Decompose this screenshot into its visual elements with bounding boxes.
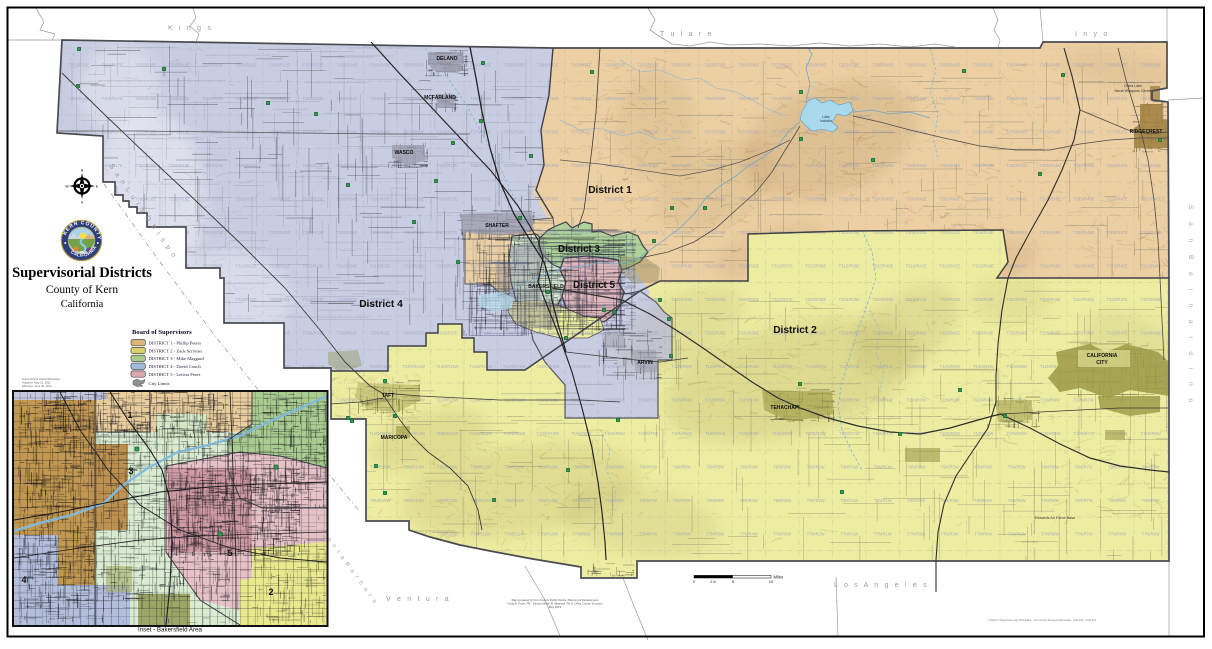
svg-text:T31S/R23E: T31S/R23E bbox=[303, 264, 324, 269]
svg-text:T31S/R37E: T31S/R37E bbox=[772, 264, 793, 269]
svg-text:T26S/R29E: T26S/R29E bbox=[504, 96, 525, 101]
svg-text:T26S/R18E: T26S/R18E bbox=[135, 96, 156, 101]
svg-text:District 5: District 5 bbox=[573, 280, 615, 291]
svg-text:T31S/R34E: T31S/R34E bbox=[671, 264, 692, 269]
svg-text:T10N/R4W: T10N/R4W bbox=[739, 431, 759, 436]
svg-text:T7N/R2W: T7N/R2W bbox=[907, 532, 925, 537]
svg-text:T27S/R45E: T27S/R45E bbox=[1040, 130, 1061, 135]
svg-text:T27S/R32E: T27S/R32E bbox=[604, 130, 625, 135]
svg-text:T32S/R47E: T32S/R47E bbox=[1107, 297, 1128, 302]
svg-text:DISTRICT 5 - Leticia Perez: DISTRICT 5 - Leticia Perez bbox=[149, 372, 201, 377]
svg-text:T10N/R1W: T10N/R1W bbox=[839, 431, 859, 436]
svg-text:T30S/R23E: T30S/R23E bbox=[303, 230, 324, 235]
svg-text:T7N/R7W: T7N/R7W bbox=[1075, 532, 1093, 537]
svg-text:T32S/R38E: T32S/R38E bbox=[805, 297, 826, 302]
svg-text:T10N/R11W: T10N/R11W bbox=[503, 431, 525, 436]
svg-text:T25S/R45E: T25S/R45E bbox=[1040, 63, 1061, 68]
svg-text:T27S/R40E: T27S/R40E bbox=[872, 130, 893, 135]
svg-text:T25S/R24E: T25S/R24E bbox=[336, 63, 357, 68]
svg-text:T32S/R26E: T32S/R26E bbox=[403, 297, 424, 302]
svg-text:T29S/R37E: T29S/R37E bbox=[772, 197, 793, 202]
svg-text:TAFT: TAFT bbox=[382, 393, 394, 399]
svg-text:T7N/R5W: T7N/R5W bbox=[1008, 532, 1026, 537]
svg-text:T32S/R34E: T32S/R34E bbox=[671, 297, 692, 302]
svg-text:T11N/R5W: T11N/R5W bbox=[705, 398, 725, 403]
svg-text:T31S/R39E: T31S/R39E bbox=[839, 264, 860, 269]
svg-text:T8N/R2W: T8N/R2W bbox=[807, 498, 825, 503]
svg-text:DISTRICT 3 - Mike Maggard: DISTRICT 3 - Mike Maggard bbox=[149, 356, 205, 361]
svg-text:T7N/R8W: T7N/R8W bbox=[606, 532, 624, 537]
svg-text:T29S/R38E: T29S/R38E bbox=[805, 197, 826, 202]
svg-text:T31S/R43E: T31S/R43E bbox=[973, 264, 994, 269]
svg-text:T7N/R10W: T7N/R10W bbox=[538, 532, 558, 537]
svg-text:T10N/R13W: T10N/R13W bbox=[436, 431, 459, 436]
svg-text:T25S/R35E: T25S/R35E bbox=[705, 63, 726, 68]
svg-text:BAKERSFIELD: BAKERSFIELD bbox=[528, 284, 564, 290]
svg-text:T8N/R6W: T8N/R6W bbox=[673, 498, 691, 503]
svg-text:T32S/R41E: T32S/R41E bbox=[906, 297, 927, 302]
svg-text:T27S/R35E: T27S/R35E bbox=[705, 130, 726, 135]
svg-text:T29S/R41E: T29S/R41E bbox=[906, 197, 927, 202]
svg-text:WASCO: WASCO bbox=[395, 150, 414, 156]
svg-text:T33S/R42E: T33S/R42E bbox=[939, 331, 960, 336]
svg-text:T31S/R38E: T31S/R38E bbox=[805, 264, 826, 269]
svg-text:T9N/R7W: T9N/R7W bbox=[1075, 465, 1093, 470]
svg-text:T26S/R37E: T26S/R37E bbox=[772, 96, 793, 101]
svg-text:T12N/R4W: T12N/R4W bbox=[739, 364, 759, 369]
svg-text:T12N/R12W: T12N/R12W bbox=[469, 364, 492, 369]
svg-text:T27S/R47E: T27S/R47E bbox=[1107, 130, 1128, 135]
svg-text:T32S/R40E: T32S/R40E bbox=[872, 297, 893, 302]
svg-text:T26S/R40E: T26S/R40E bbox=[872, 96, 893, 101]
svg-text:T26S/R20E: T26S/R20E bbox=[202, 96, 223, 101]
svg-text:T25S/R39E: T25S/R39E bbox=[839, 63, 860, 68]
svg-text:T25S/R46E: T25S/R46E bbox=[1073, 63, 1094, 68]
svg-text:T8N/R3W: T8N/R3W bbox=[941, 498, 959, 503]
svg-text:T32S/R36E: T32S/R36E bbox=[738, 297, 759, 302]
svg-text:T8N/R11W: T8N/R11W bbox=[504, 498, 524, 503]
svg-text:V e n t u r a: V e n t u r a bbox=[386, 596, 451, 603]
svg-text:T31S/R26E: T31S/R26E bbox=[403, 264, 424, 269]
svg-text:T8N/R5W: T8N/R5W bbox=[706, 498, 724, 503]
svg-text:T7N/R4W: T7N/R4W bbox=[974, 532, 992, 537]
svg-text:T29S/R28E: T29S/R28E bbox=[470, 197, 491, 202]
svg-text:T32S/R31E: T32S/R31E bbox=[571, 297, 592, 302]
svg-text:T26S/R41E: T26S/R41E bbox=[906, 96, 927, 101]
svg-text:T25S/R26E: T25S/R26E bbox=[403, 63, 424, 68]
svg-text:T25S/R19E: T25S/R19E bbox=[169, 63, 190, 68]
svg-text:T9N/R6W: T9N/R6W bbox=[1041, 465, 1059, 470]
svg-text:T32S/R43E: T32S/R43E bbox=[973, 297, 994, 302]
svg-text:T28S/R42E: T28S/R42E bbox=[939, 163, 960, 168]
svg-text:Edwards Air Force Base: Edwards Air Force Base bbox=[1035, 516, 1076, 520]
svg-text:T9N/R14W: T9N/R14W bbox=[404, 465, 424, 470]
svg-text:T29S/R39E: T29S/R39E bbox=[839, 197, 860, 202]
svg-text:T32S/R35E: T32S/R35E bbox=[705, 297, 726, 302]
svg-text:Supervisorial Districts: Supervisorial Districts bbox=[12, 265, 152, 281]
svg-text:T28S/R27E: T28S/R27E bbox=[437, 163, 458, 168]
svg-text:T9N/R2W: T9N/R2W bbox=[907, 465, 925, 470]
svg-text:T11N/R16W: T11N/R16W bbox=[336, 398, 358, 403]
svg-text:T10N/R12W: T10N/R12W bbox=[469, 431, 492, 436]
svg-text:T27S/R17E: T27S/R17E bbox=[102, 130, 123, 135]
svg-text:District 1: District 1 bbox=[588, 185, 632, 196]
svg-text:T28S/R46E: T28S/R46E bbox=[1073, 163, 1094, 168]
svg-text:T31S/R24E: T31S/R24E bbox=[336, 264, 357, 269]
svg-text:District 2: District 2 bbox=[773, 325, 817, 336]
svg-text:S a n B e r n a r d i n o: S a n B e r n a r d i n o bbox=[1187, 205, 1194, 408]
svg-text:T12N/R1W: T12N/R1W bbox=[839, 364, 859, 369]
svg-text:T8N/R13W: T8N/R13W bbox=[437, 498, 457, 503]
svg-text:T26S/R19E: T26S/R19E bbox=[169, 96, 190, 101]
svg-text:T29S/R32E: T29S/R32E bbox=[604, 197, 625, 202]
svg-text:T29S/R20E: T29S/R20E bbox=[202, 197, 223, 202]
svg-text:T25S/R47E: T25S/R47E bbox=[1107, 63, 1128, 68]
svg-text:T12N/R2W: T12N/R2W bbox=[906, 364, 926, 369]
svg-text:T8N/R8W: T8N/R8W bbox=[1108, 498, 1126, 503]
svg-text:T30S/R48E: T30S/R48E bbox=[1140, 230, 1161, 235]
svg-text:T29S/R25E: T29S/R25E bbox=[370, 197, 391, 202]
svg-text:T26S/R21E: T26S/R21E bbox=[236, 96, 257, 101]
svg-text:T33S/R43E: T33S/R43E bbox=[973, 331, 994, 336]
svg-text:T11N/R4W: T11N/R4W bbox=[973, 398, 993, 403]
svg-text:T10N/R2W: T10N/R2W bbox=[806, 431, 826, 436]
svg-text:T32S/R23E: T32S/R23E bbox=[303, 297, 324, 302]
svg-text:T26S/R44E: T26S/R44E bbox=[1006, 96, 1027, 101]
svg-text:T25S/R29E: T25S/R29E bbox=[504, 63, 525, 68]
svg-text:L o s A n g e l e s: L o s A n g e l e s bbox=[834, 582, 929, 589]
svg-text:T29S/R33E: T29S/R33E bbox=[638, 197, 659, 202]
svg-text:T28S/R30E: T28S/R30E bbox=[537, 163, 558, 168]
svg-text:T33S/R48E: T33S/R48E bbox=[1140, 331, 1161, 336]
svg-text:T25S/R25E: T25S/R25E bbox=[370, 63, 391, 68]
svg-text:T28S/R41E: T28S/R41E bbox=[906, 163, 927, 168]
svg-text:T12N/R10W: T12N/R10W bbox=[536, 364, 559, 369]
svg-text:T30S/R44E: T30S/R44E bbox=[1006, 230, 1027, 235]
svg-text:T30S/R25E: T30S/R25E bbox=[370, 230, 391, 235]
svg-text:T7N/R2W: T7N/R2W bbox=[807, 532, 825, 537]
svg-text:CALIFORNIA: CALIFORNIA bbox=[1087, 353, 1118, 359]
svg-text:T26S/R39E: T26S/R39E bbox=[839, 96, 860, 101]
svg-text:T8N/R6W: T8N/R6W bbox=[1041, 498, 1059, 503]
svg-text:T33S/R47E: T33S/R47E bbox=[1107, 331, 1128, 336]
svg-text:T25S/R43E: T25S/R43E bbox=[973, 63, 994, 68]
svg-text:T10N/R10W: T10N/R10W bbox=[536, 431, 559, 436]
svg-text:T26S/R34E: T26S/R34E bbox=[671, 96, 692, 101]
svg-text:T29S/R36E: T29S/R36E bbox=[738, 197, 759, 202]
svg-text:California: California bbox=[61, 299, 104, 310]
svg-text:T26S/R33E: T26S/R33E bbox=[638, 96, 659, 101]
svg-text:T10N/R5W: T10N/R5W bbox=[1007, 431, 1027, 436]
svg-text:T26S/R35E: T26S/R35E bbox=[705, 96, 726, 101]
svg-text:T11N/R1W: T11N/R1W bbox=[873, 398, 893, 403]
svg-text:T28S/R45E: T28S/R45E bbox=[1040, 163, 1061, 168]
svg-text:T9N/R15W: T9N/R15W bbox=[370, 465, 390, 470]
svg-text:T33S/R34E: T33S/R34E bbox=[671, 331, 692, 336]
svg-text:T27S/R36E: T27S/R36E bbox=[738, 130, 759, 135]
svg-text:T29S/R19E: T29S/R19E bbox=[169, 197, 190, 202]
svg-text:T33S/R45E: T33S/R45E bbox=[1040, 331, 1061, 336]
svg-text:I n y o: I n y o bbox=[1075, 31, 1109, 38]
svg-text:T11N/R3W: T11N/R3W bbox=[940, 398, 960, 403]
svg-text:T9N/R4W: T9N/R4W bbox=[740, 465, 758, 470]
svg-text:T28S/R40E: T28S/R40E bbox=[872, 163, 893, 168]
svg-text:T27S/R18E: T27S/R18E bbox=[135, 130, 156, 135]
svg-text:T26S/R28E: T26S/R28E bbox=[470, 96, 491, 101]
svg-text:T32S/R44E: T32S/R44E bbox=[1006, 297, 1027, 302]
svg-text:T26S/R42E: T26S/R42E bbox=[939, 96, 960, 101]
svg-text:County of Kern: County of Kern bbox=[46, 284, 118, 296]
svg-text:T32S/R42E: T32S/R42E bbox=[939, 297, 960, 302]
svg-text:T7N/R5W: T7N/R5W bbox=[706, 532, 724, 537]
svg-text:T9N/R7W: T9N/R7W bbox=[639, 465, 657, 470]
svg-text:T8N/R15W: T8N/R15W bbox=[370, 498, 390, 503]
svg-text:T28S/R34E: T28S/R34E bbox=[671, 163, 692, 168]
svg-text:T25S/R34E: T25S/R34E bbox=[671, 63, 692, 68]
svg-text:CITY: CITY bbox=[1096, 360, 1108, 366]
svg-text:T7N/R11W: T7N/R11W bbox=[504, 532, 524, 537]
svg-text:T7N/R6W: T7N/R6W bbox=[1041, 532, 1059, 537]
svg-text:T29S/R47E: T29S/R47E bbox=[1107, 197, 1128, 202]
svg-text:T31S/R45E: T31S/R45E bbox=[1040, 264, 1061, 269]
svg-text:T12N/R5W: T12N/R5W bbox=[1007, 364, 1027, 369]
svg-text:DELANO: DELANO bbox=[436, 56, 457, 62]
svg-text:T31S/R40E: T31S/R40E bbox=[872, 264, 893, 269]
svg-text:T u l a r e: T u l a r e bbox=[660, 31, 714, 38]
svg-text:DISTRICT 1 - Phillip Peters: DISTRICT 1 - Phillip Peters bbox=[149, 341, 202, 346]
svg-text:T29S/R48E: T29S/R48E bbox=[1140, 197, 1161, 202]
svg-text:T25S/R30E: T25S/R30E bbox=[537, 63, 558, 68]
svg-text:T28S/R22E: T28S/R22E bbox=[269, 163, 290, 168]
svg-text:T8N/R8W: T8N/R8W bbox=[606, 498, 624, 503]
svg-text:T33S/R24E: T33S/R24E bbox=[336, 331, 357, 336]
svg-text:T27S/R41E: T27S/R41E bbox=[906, 130, 927, 135]
svg-text:DISTRICT 2 - Zack Scrivner: DISTRICT 2 - Zack Scrivner bbox=[149, 348, 203, 353]
svg-text:T9N/R6W: T9N/R6W bbox=[673, 465, 691, 470]
svg-text:T8N/R10W: T8N/R10W bbox=[538, 498, 558, 503]
svg-text:T30S/R35E: T30S/R35E bbox=[705, 230, 726, 235]
svg-text:T8N/R14W: T8N/R14W bbox=[404, 498, 424, 503]
svg-text:T28S/R19E: T28S/R19E bbox=[169, 163, 190, 168]
svg-text:T8N/R1W: T8N/R1W bbox=[874, 498, 892, 503]
svg-text:MARICOPA: MARICOPA bbox=[381, 435, 408, 441]
svg-text:T11N/R4W: T11N/R4W bbox=[739, 398, 759, 403]
svg-text:T29S/R46E: T29S/R46E bbox=[1073, 197, 1094, 202]
svg-text:T27S/R43E: T27S/R43E bbox=[973, 130, 994, 135]
svg-text:T29S/R44E: T29S/R44E bbox=[1006, 197, 1027, 202]
svg-text:T33S/R25E: T33S/R25E bbox=[370, 331, 391, 336]
svg-text:T9N/R5W: T9N/R5W bbox=[706, 465, 724, 470]
svg-text:T9N/R1W: T9N/R1W bbox=[874, 465, 892, 470]
svg-text:T29S/R31E: T29S/R31E bbox=[571, 197, 592, 202]
svg-text:Effective: June 30, 2011: Effective: June 30, 2011 bbox=[22, 384, 52, 388]
svg-text:T10N/R7W: T10N/R7W bbox=[1074, 431, 1094, 436]
svg-text:T33S/R36E: T33S/R36E bbox=[738, 331, 759, 336]
svg-text:T9N/R8W: T9N/R8W bbox=[606, 465, 624, 470]
svg-text:T33S/R41E: T33S/R41E bbox=[906, 331, 927, 336]
svg-text:T10N/R6W: T10N/R6W bbox=[672, 431, 692, 436]
svg-text:T25S/R16E: T25S/R16E bbox=[68, 63, 89, 68]
svg-text:T31S/R22E: T31S/R22E bbox=[269, 264, 290, 269]
svg-text:T12N/R9W: T12N/R9W bbox=[571, 364, 591, 369]
svg-text:T33S/R35E: T33S/R35E bbox=[705, 331, 726, 336]
svg-text:T32S/R37E: T32S/R37E bbox=[772, 297, 793, 302]
svg-text:T31S/R48E: T31S/R48E bbox=[1140, 264, 1161, 269]
svg-text:T9N/R12W: T9N/R12W bbox=[471, 465, 491, 470]
svg-text:T28S/R47E: T28S/R47E bbox=[1107, 163, 1128, 168]
svg-text:T9N/R9W: T9N/R9W bbox=[572, 465, 590, 470]
svg-text:T12N/R13W: T12N/R13W bbox=[436, 364, 459, 369]
svg-text:T29S/R40E: T29S/R40E bbox=[872, 197, 893, 202]
svg-text:T12N/R3W: T12N/R3W bbox=[940, 364, 960, 369]
svg-text:T26S/R32E: T26S/R32E bbox=[604, 96, 625, 101]
svg-text:T11N/R6W: T11N/R6W bbox=[1040, 398, 1060, 403]
svg-text:T9N/R4W: T9N/R4W bbox=[974, 465, 992, 470]
svg-text:T32S/R48E: T32S/R48E bbox=[1140, 297, 1161, 302]
svg-text:T28S/R38E: T28S/R38E bbox=[805, 163, 826, 168]
svg-text:T7N/R12W: T7N/R12W bbox=[471, 532, 491, 537]
svg-text:T8N/R3W: T8N/R3W bbox=[773, 498, 791, 503]
svg-text:ARVIN: ARVIN bbox=[637, 360, 653, 366]
svg-text:T28S/R33E: T28S/R33E bbox=[638, 163, 659, 168]
svg-text:T25S/R18E: T25S/R18E bbox=[135, 63, 156, 68]
svg-text:T11N/R2W: T11N/R2W bbox=[906, 398, 926, 403]
svg-text:T7N/R9W: T7N/R9W bbox=[572, 532, 590, 537]
svg-text:T31S/R41E: T31S/R41E bbox=[906, 264, 927, 269]
svg-text:T30S/R21E: T30S/R21E bbox=[236, 230, 257, 235]
svg-text:T8N/R1W: T8N/R1W bbox=[840, 498, 858, 503]
svg-text:T32S/R45E: T32S/R45E bbox=[1040, 297, 1061, 302]
svg-text:T9N/R3W: T9N/R3W bbox=[941, 465, 959, 470]
svg-text:T31S/R42E: T31S/R42E bbox=[939, 264, 960, 269]
svg-text:T25S/R17E: T25S/R17E bbox=[102, 63, 123, 68]
svg-text:T11N/R6W: T11N/R6W bbox=[672, 398, 692, 403]
svg-text:T12N/R3W: T12N/R3W bbox=[772, 364, 792, 369]
svg-text:T26S/R31E: T26S/R31E bbox=[571, 96, 592, 101]
svg-text:T7N/R8W: T7N/R8W bbox=[1108, 532, 1126, 537]
svg-text:T12N/R8W: T12N/R8W bbox=[605, 364, 625, 369]
svg-text:T31S/R44E: T31S/R44E bbox=[1006, 264, 1027, 269]
svg-text:T8N/R4W: T8N/R4W bbox=[974, 498, 992, 503]
svg-text:T12N/R11W: T12N/R11W bbox=[503, 364, 525, 369]
svg-text:T25S/R48E: T25S/R48E bbox=[1140, 63, 1161, 68]
svg-text:T30S/R33E: T30S/R33E bbox=[638, 230, 659, 235]
svg-text:T27S/R44E: T27S/R44E bbox=[1006, 130, 1027, 135]
svg-text:T27S/R39E: T27S/R39E bbox=[839, 130, 860, 135]
svg-text:T30S/R47E: T30S/R47E bbox=[1107, 230, 1128, 235]
svg-text:T9N/R1W: T9N/R1W bbox=[840, 465, 858, 470]
svg-text:K i n g s: K i n g s bbox=[168, 25, 213, 32]
svg-text:T31S/R25E: T31S/R25E bbox=[370, 264, 391, 269]
svg-text:T31S/R30E: T31S/R30E bbox=[537, 264, 558, 269]
svg-text:T30S/R45E: T30S/R45E bbox=[1040, 230, 1061, 235]
svg-text:RIDGECREST: RIDGECREST bbox=[1130, 129, 1163, 135]
svg-text:T25S/R22E: T25S/R22E bbox=[269, 63, 290, 68]
svg-text:T12N/R14W: T12N/R14W bbox=[402, 364, 425, 369]
svg-text:T10N/R7W: T10N/R7W bbox=[638, 431, 658, 436]
svg-text:T9N/R13W: T9N/R13W bbox=[437, 465, 457, 470]
svg-text:T29S/R27E: T29S/R27E bbox=[437, 197, 458, 202]
svg-text:T9N/R10W: T9N/R10W bbox=[538, 465, 558, 470]
svg-text:T25S/R44E: T25S/R44E bbox=[1006, 63, 1027, 68]
svg-text:T29S/R42E: T29S/R42E bbox=[939, 197, 960, 202]
svg-text:T30S/R20E: T30S/R20E bbox=[202, 230, 223, 235]
svg-text:T12N/R5W: T12N/R5W bbox=[705, 364, 725, 369]
svg-text:T33S/R26E: T33S/R26E bbox=[403, 331, 424, 336]
svg-text:T12N/R2W: T12N/R2W bbox=[806, 364, 826, 369]
svg-text:T25S/R33E: T25S/R33E bbox=[638, 63, 659, 68]
svg-text:T26S/R17E: T26S/R17E bbox=[102, 96, 123, 101]
svg-text:T11N/R7W: T11N/R7W bbox=[1074, 398, 1094, 403]
svg-text:Isabella: Isabella bbox=[820, 119, 832, 123]
svg-text:T32S/R46E: T32S/R46E bbox=[1073, 297, 1094, 302]
svg-text:T30S/R26E: T30S/R26E bbox=[403, 230, 424, 235]
svg-text:T9N/R2W: T9N/R2W bbox=[807, 465, 825, 470]
svg-text:T7N/R9W: T7N/R9W bbox=[1142, 532, 1160, 537]
svg-text:T10N/R5W: T10N/R5W bbox=[705, 431, 725, 436]
svg-text:T25S/R42E: T25S/R42E bbox=[939, 63, 960, 68]
svg-text:T27S/R19E: T27S/R19E bbox=[169, 130, 190, 135]
svg-text:T32S/R24E: T32S/R24E bbox=[336, 297, 357, 302]
svg-text:T31S/R36E: T31S/R36E bbox=[738, 264, 759, 269]
svg-text:TEHACHAPI: TEHACHAPI bbox=[770, 405, 800, 411]
svg-text:T26S/R25E: T26S/R25E bbox=[370, 96, 391, 101]
svg-text:T25S/R36E: T25S/R36E bbox=[738, 63, 759, 68]
svg-text:T29S/R43E: T29S/R43E bbox=[973, 197, 994, 202]
svg-text:T12N/R4W: T12N/R4W bbox=[973, 364, 993, 369]
svg-text:T8N/R7W: T8N/R7W bbox=[1075, 498, 1093, 503]
svg-text:T28S/R29E: T28S/R29E bbox=[504, 163, 525, 168]
svg-text:T32S/R22E: T32S/R22E bbox=[269, 297, 290, 302]
svg-text:T33S/R33E: T33S/R33E bbox=[638, 331, 659, 336]
svg-text:SHAFTER: SHAFTER bbox=[485, 223, 509, 229]
svg-text:T7N/R4W: T7N/R4W bbox=[740, 532, 758, 537]
svg-text:T7N/R6W: T7N/R6W bbox=[673, 532, 691, 537]
svg-text:T25S/R41E: T25S/R41E bbox=[906, 63, 927, 68]
svg-text:T30S/R24E: T30S/R24E bbox=[336, 230, 357, 235]
svg-text:T9N/R5W: T9N/R5W bbox=[1008, 465, 1026, 470]
svg-text:T29S/R26E: T29S/R26E bbox=[403, 197, 424, 202]
svg-text:T29S/R21E: T29S/R21E bbox=[236, 197, 257, 202]
svg-text:T28S/R44E: T28S/R44E bbox=[1006, 163, 1027, 168]
svg-text:T11N/R7W: T11N/R7W bbox=[638, 398, 658, 403]
svg-text:T8N/R5W: T8N/R5W bbox=[1008, 498, 1026, 503]
svg-text:T25S/R40E: T25S/R40E bbox=[872, 63, 893, 68]
svg-text:T26S/R47E: T26S/R47E bbox=[1107, 96, 1128, 101]
svg-text:T27S/R33E: T27S/R33E bbox=[638, 130, 659, 135]
svg-text:T8N/R2W: T8N/R2W bbox=[907, 498, 925, 503]
svg-text:T9N/R11W: T9N/R11W bbox=[504, 465, 524, 470]
svg-text:T25S/R31E: T25S/R31E bbox=[571, 63, 592, 68]
svg-text:T11N/R13W: T11N/R13W bbox=[436, 398, 458, 403]
svg-text:T31S/R27E: T31S/R27E bbox=[437, 264, 458, 269]
svg-text:District 4: District 4 bbox=[359, 299, 403, 310]
svg-text:T32S/R21E: T32S/R21E bbox=[236, 297, 257, 302]
svg-text:T28S/R31E: T28S/R31E bbox=[571, 163, 592, 168]
svg-text:T32S/R27E: T32S/R27E bbox=[437, 297, 458, 302]
svg-text:T33S/R40E: T33S/R40E bbox=[872, 331, 893, 336]
svg-text:T30S/R22E: T30S/R22E bbox=[269, 230, 290, 235]
svg-text:T8N/R7W: T8N/R7W bbox=[639, 498, 657, 503]
svg-text:T33S/R44E: T33S/R44E bbox=[1006, 331, 1027, 336]
svg-text:T28S/R20E: T28S/R20E bbox=[202, 163, 223, 168]
svg-text:T30S/R27E: T30S/R27E bbox=[437, 230, 458, 235]
svg-text:Board of Supervisors: Board of Supervisors bbox=[132, 329, 192, 336]
svg-text:T31S/R46E: T31S/R46E bbox=[1073, 264, 1094, 269]
svg-text:MCFARLAND: MCFARLAND bbox=[424, 95, 456, 101]
svg-text:T10N/R3W: T10N/R3W bbox=[940, 431, 960, 436]
svg-text:T7N/R1W: T7N/R1W bbox=[840, 532, 858, 537]
